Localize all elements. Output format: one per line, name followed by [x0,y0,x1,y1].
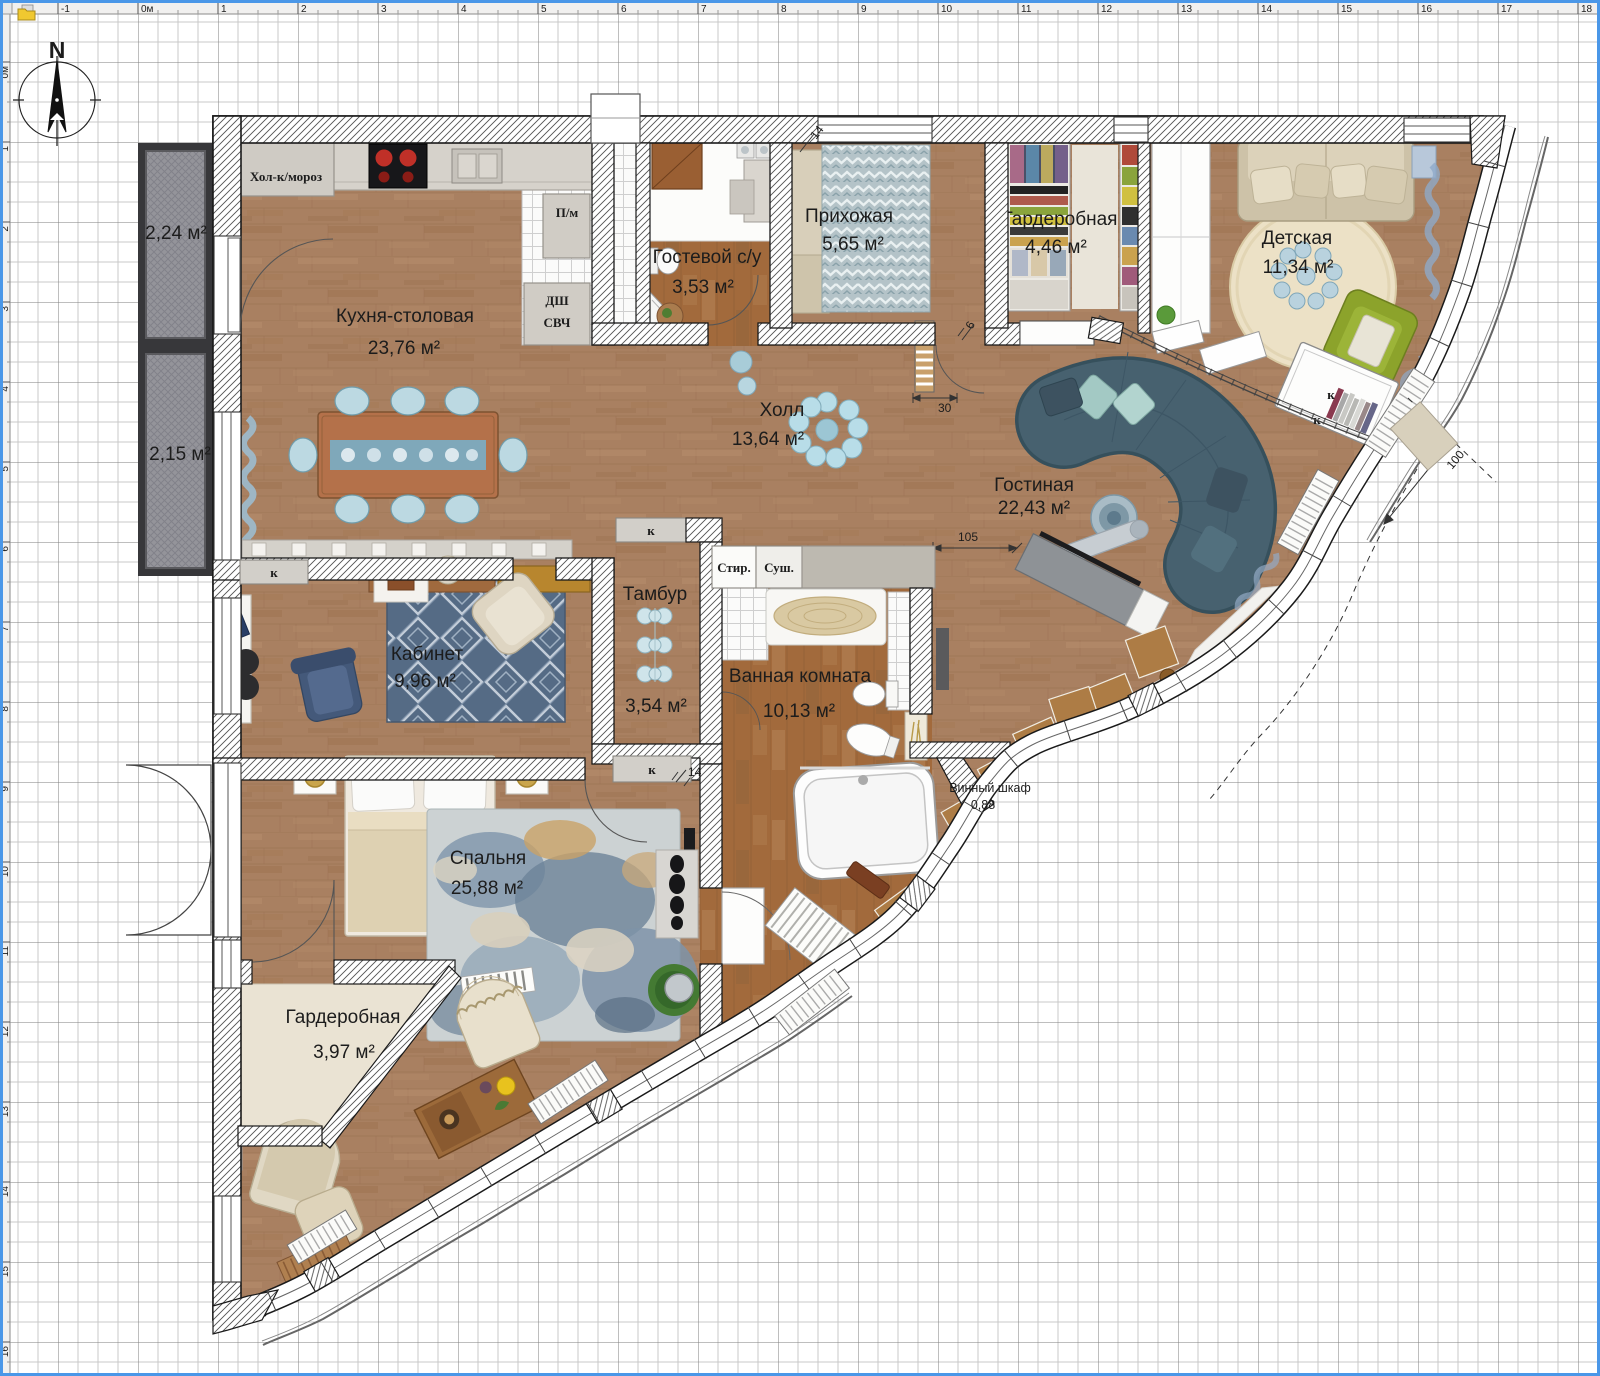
svg-text:к: к [648,762,656,777]
svg-text:10: 10 [941,4,953,15]
svg-text:23,76 м²: 23,76 м² [368,338,440,359]
svg-text:П/м: П/м [556,205,579,220]
svg-text:4,46 м²: 4,46 м² [1025,237,1087,258]
svg-text:30: 30 [938,401,952,415]
svg-text:-1: -1 [61,4,70,15]
svg-text:11: 11 [1021,4,1032,15]
svg-text:Гостевой с/у: Гостевой с/у [653,247,762,268]
svg-text:13: 13 [1181,4,1193,15]
svg-text:Гардеробная: Гардеробная [1003,209,1118,230]
svg-text:СВЧ: СВЧ [544,315,571,330]
svg-text:Хол-к/мороз: Хол-к/мороз [250,169,322,184]
svg-text:11,34 м²: 11,34 м² [1263,257,1334,278]
svg-text:8: 8 [781,4,787,15]
svg-text:2,15 м²: 2,15 м² [149,444,211,465]
svg-text:Суш.: Суш. [764,560,794,575]
svg-text:Спальня: Спальня [450,848,526,869]
svg-text:1: 1 [221,4,227,15]
svg-text:к: к [647,523,655,538]
svg-text:25,88 м²: 25,88 м² [451,878,523,899]
svg-text:Гардеробная: Гардеробная [286,1007,401,1028]
svg-text:Винный шкаф: Винный шкаф [949,781,1031,795]
svg-text:2: 2 [301,4,307,15]
svg-text:14: 14 [1261,4,1273,15]
svg-text:к: к [1327,387,1335,402]
svg-text:4: 4 [461,4,467,15]
svg-text:13,64 м²: 13,64 м² [732,429,804,450]
svg-text:Тамбур: Тамбур [623,584,688,605]
svg-text:Кабинет: Кабинет [391,644,464,665]
svg-text:к: к [270,565,278,580]
svg-text:Холл: Холл [760,400,805,421]
svg-text:17: 17 [1501,4,1513,15]
svg-text:3,97 м²: 3,97 м² [313,1042,375,1063]
svg-text:Детская: Детская [1262,228,1332,249]
svg-text:Прихожая: Прихожая [805,206,893,227]
svg-text:3,54 м²: 3,54 м² [625,696,687,717]
svg-text:14: 14 [688,765,702,779]
svg-text:6: 6 [621,4,627,15]
svg-text:0,88: 0,88 [971,798,995,812]
svg-text:Ванная комната: Ванная комната [729,666,872,687]
svg-text:12: 12 [1101,4,1113,15]
svg-text:2,24 м²: 2,24 м² [145,223,207,244]
svg-text:5: 5 [541,4,547,15]
svg-text:Стир.: Стир. [717,560,751,575]
svg-text:5,65 м²: 5,65 м² [822,234,884,255]
svg-text:10,13 м²: 10,13 м² [763,701,835,722]
svg-text:16: 16 [1421,4,1433,15]
svg-text:N: N [49,37,66,63]
svg-text:3: 3 [381,4,387,15]
svg-text:Гостиная: Гостиная [994,475,1074,496]
svg-text:0м: 0м [141,4,154,15]
svg-text:Кухня-столовая: Кухня-столовая [336,306,474,327]
svg-text:3,53 м²: 3,53 м² [672,277,734,298]
svg-text:105: 105 [958,530,978,544]
svg-text:7: 7 [701,4,707,15]
svg-text:18: 18 [1581,4,1593,15]
svg-text:9: 9 [861,4,867,15]
svg-text:22,43 м²: 22,43 м² [998,498,1070,519]
svg-text:15: 15 [1341,4,1353,15]
svg-text:9,96 м²: 9,96 м² [394,671,456,692]
svg-text:ДШ: ДШ [545,293,569,308]
